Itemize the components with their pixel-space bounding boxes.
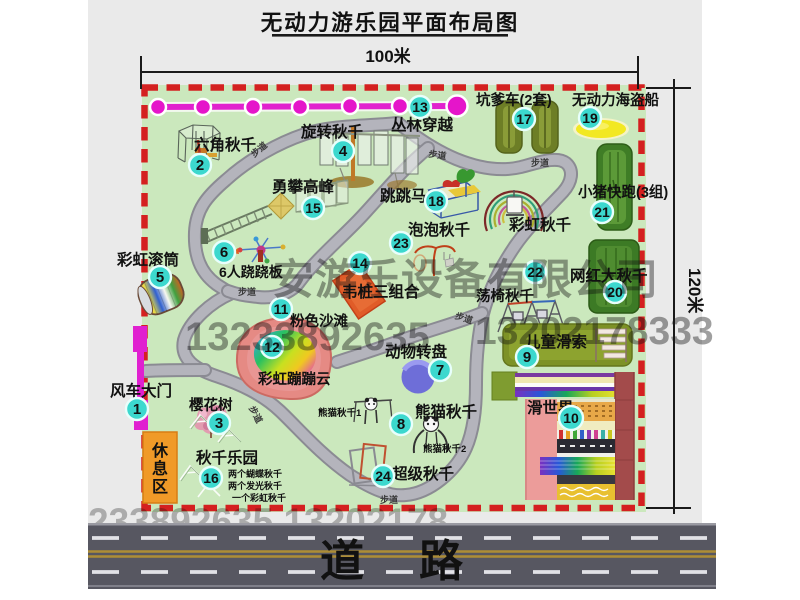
- svg-text:熊猫秋千: 熊猫秋千: [415, 402, 478, 421]
- svg-text:13202178333: 13202178333: [475, 310, 714, 353]
- svg-text:17: 17: [516, 111, 532, 127]
- svg-text:24: 24: [375, 468, 391, 484]
- svg-text:彩虹滚筒: 彩虹滚筒: [116, 250, 179, 269]
- svg-text:路: 路: [419, 537, 464, 586]
- svg-text:10: 10: [563, 410, 579, 426]
- svg-text:风车大门: 风车大门: [110, 381, 172, 400]
- svg-text:18: 18: [428, 193, 444, 209]
- svg-text:1: 1: [133, 401, 141, 418]
- svg-text:安游乐设备有限公司: 安游乐设备有限公司: [272, 256, 659, 303]
- svg-text:21: 21: [594, 204, 610, 220]
- svg-text:泡泡秋千: 泡泡秋千: [408, 220, 471, 239]
- svg-text:彩虹秋千: 彩虹秋千: [508, 215, 572, 234]
- svg-text:坑爹车(2套): 坑爹车(2套): [476, 91, 552, 109]
- svg-text:步道: 步道: [238, 286, 256, 297]
- svg-text:16: 16: [203, 470, 219, 486]
- svg-text:7: 7: [436, 362, 444, 379]
- svg-text:旋转秋千: 旋转秋千: [300, 122, 364, 141]
- svg-text:无动力游乐园平面布局图: 无动力游乐园平面布局图: [261, 10, 520, 35]
- svg-text:熊猫秋千2: 熊猫秋千2: [423, 443, 466, 455]
- svg-text:步道: 步道: [531, 157, 549, 168]
- svg-text:六角秋千: 六角秋千: [194, 135, 257, 154]
- svg-text:勇攀高峰: 勇攀高峰: [272, 177, 335, 196]
- svg-text:息: 息: [152, 459, 168, 478]
- svg-text:120米: 120米: [685, 268, 705, 314]
- svg-text:小猪快跑(3组): 小猪快跑(3组): [578, 183, 668, 201]
- svg-text:两个蝴蝶秋千: 两个蝴蝶秋千: [228, 468, 282, 479]
- svg-text:区: 区: [152, 478, 168, 496]
- svg-text:道: 道: [320, 537, 364, 586]
- svg-text:秋千乐园: 秋千乐园: [196, 448, 258, 467]
- svg-text:23: 23: [393, 235, 409, 251]
- svg-text:休: 休: [151, 441, 169, 460]
- svg-text:两个发光秋千: 两个发光秋千: [228, 480, 282, 491]
- svg-text:6: 6: [220, 244, 228, 261]
- svg-text:5: 5: [156, 269, 164, 286]
- svg-text:熊猫秋千1: 熊猫秋千1: [318, 407, 362, 419]
- svg-text:彩虹蹦蹦云: 彩虹蹦蹦云: [257, 370, 331, 388]
- svg-text:4: 4: [339, 143, 348, 160]
- svg-text:2: 2: [196, 157, 204, 174]
- svg-text:无动力海盗船: 无动力海盗船: [572, 91, 659, 109]
- svg-text:3: 3: [215, 415, 223, 432]
- svg-text:樱花树: 樱花树: [189, 396, 233, 414]
- svg-text:跳跳马: 跳跳马: [380, 186, 427, 205]
- svg-text:超级秋千: 超级秋千: [391, 464, 455, 483]
- svg-text:13233892635: 13233892635: [185, 315, 430, 359]
- svg-text:100米: 100米: [365, 46, 411, 66]
- svg-text:19: 19: [582, 110, 598, 126]
- svg-text:13: 13: [412, 99, 428, 115]
- svg-text:15: 15: [305, 200, 321, 216]
- svg-text:8: 8: [397, 416, 405, 433]
